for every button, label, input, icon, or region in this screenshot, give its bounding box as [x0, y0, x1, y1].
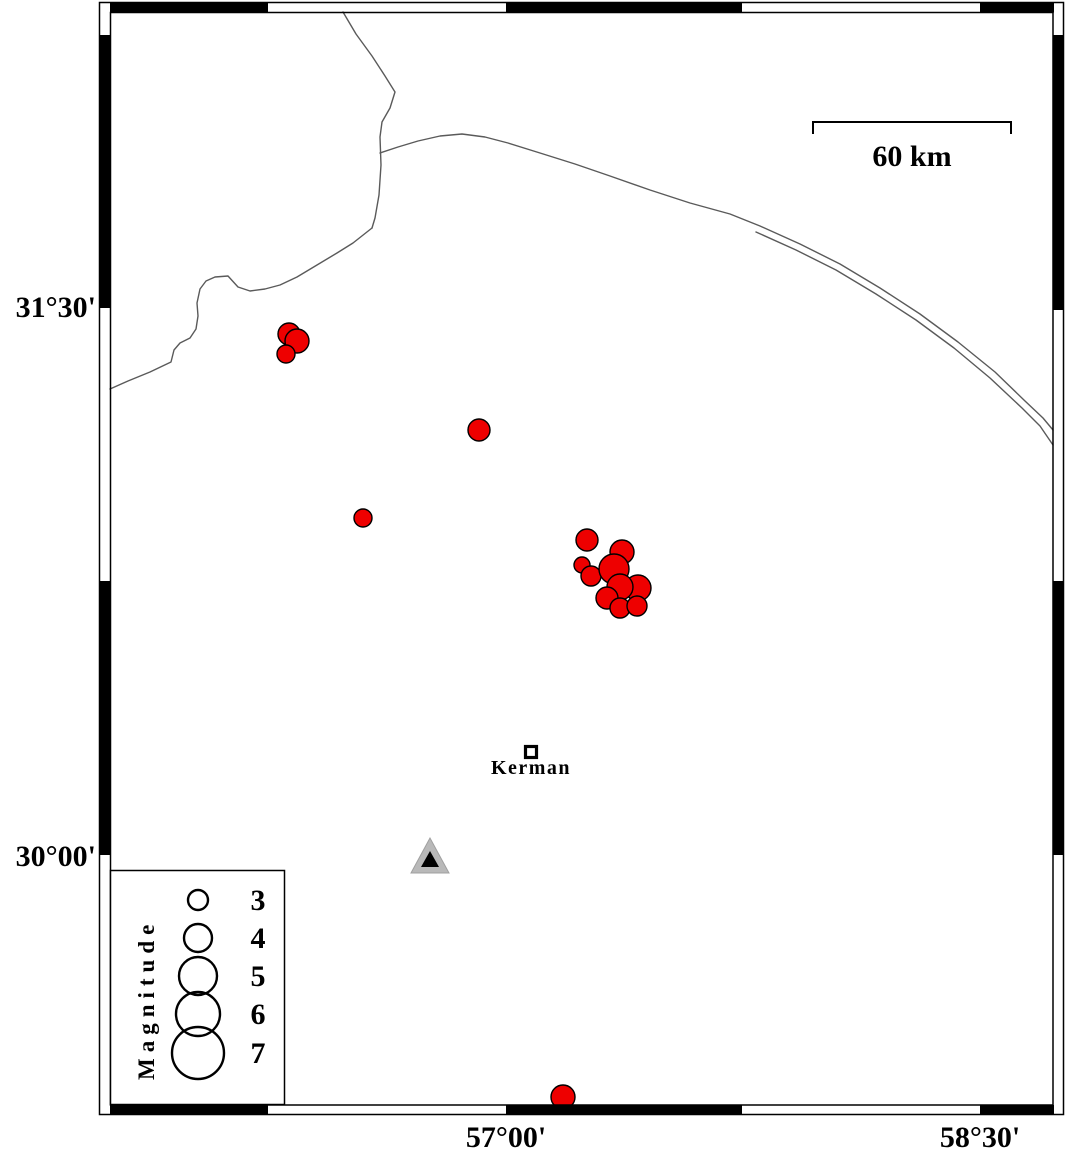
border-segment — [980, 1105, 1054, 1115]
border-segment — [506, 3, 742, 13]
seismicity-map-page: 31°30' 30°00' 57°00' 58°30' 60 km Kerman… — [0, 0, 1066, 1155]
border-segment — [110, 1105, 268, 1115]
lat-label-top: 31°30' — [16, 291, 96, 324]
border-segment — [980, 3, 1054, 13]
legend-value-4: 4 — [251, 922, 266, 955]
lon-label-right: 58°30' — [940, 1121, 1020, 1154]
border-segment — [506, 1105, 742, 1115]
lon-label-left: 57°00' — [466, 1121, 546, 1154]
border-segment — [100, 35, 111, 308]
earthquake-marker — [576, 529, 598, 551]
legend-title: Magnitude — [134, 919, 159, 1080]
earthquake-marker — [354, 509, 372, 527]
map-canvas: 31°30' 30°00' 57°00' 58°30' 60 km Kerman… — [0, 0, 1066, 1155]
earthquake-marker — [627, 596, 647, 616]
legend-value-6: 6 — [251, 998, 266, 1031]
earthquake-marker — [277, 345, 295, 363]
legend-value-5: 5 — [251, 960, 266, 993]
lat-label-bottom: 30°00' — [16, 840, 96, 873]
legend-value-3: 3 — [251, 884, 266, 917]
magnitude-legend: Magnitude 3 4 5 6 7 — [111, 871, 285, 1105]
earthquake-marker — [468, 419, 490, 441]
earthquake-marker — [581, 566, 601, 586]
city-label: Kerman — [491, 757, 571, 779]
city-square-icon — [526, 747, 537, 758]
legend-value-7: 7 — [251, 1037, 266, 1070]
border-segment — [1053, 35, 1064, 310]
border-segment — [100, 581, 111, 855]
border-segment — [110, 3, 268, 13]
scale-bar-label: 60 km — [872, 140, 951, 173]
border-segment — [1053, 581, 1064, 855]
